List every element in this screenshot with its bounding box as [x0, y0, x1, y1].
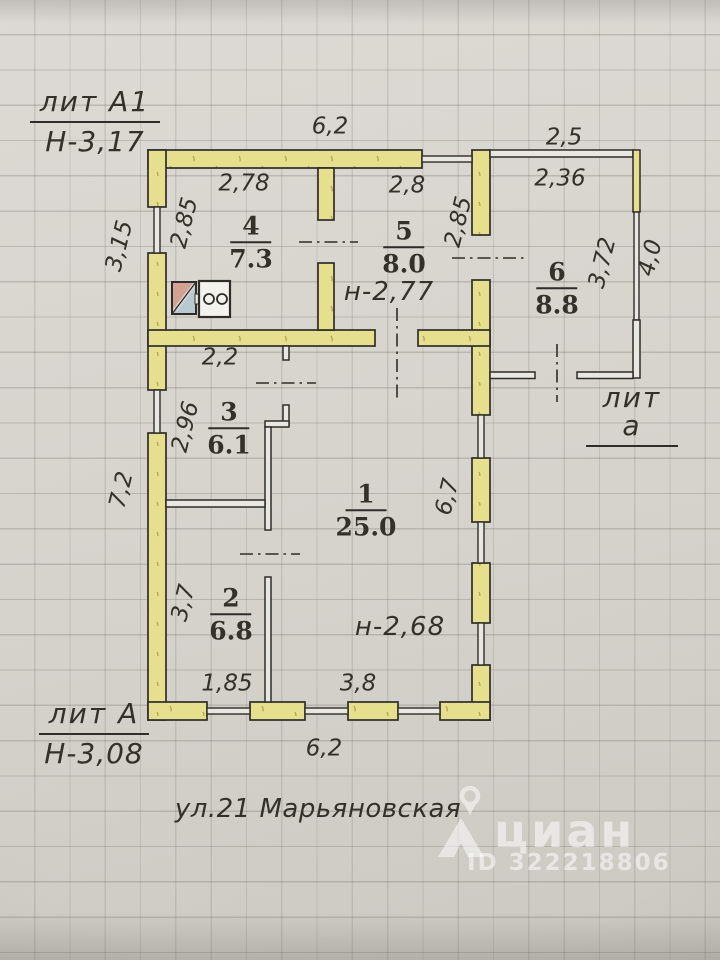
- room-label-1: 1 25.0: [336, 481, 397, 541]
- ceiling-height-upper: н-2,77: [344, 279, 434, 305]
- room-number: 3: [208, 399, 249, 429]
- room-number: 4: [230, 213, 271, 243]
- room-area: 25.0: [336, 515, 397, 541]
- location-pin-tail: [463, 802, 477, 815]
- wall-segment: [265, 577, 271, 702]
- stove-icon: [199, 281, 230, 317]
- building-label-a1: лит А1 Н-3,17: [20, 88, 170, 156]
- wall-segment: [265, 421, 289, 427]
- wall-segment: [472, 150, 490, 235]
- dim-annex-top: 2,5: [546, 127, 583, 150]
- wall-segment: [490, 372, 535, 379]
- wall-segment: [472, 563, 490, 623]
- window: [478, 623, 484, 665]
- dim-bottom-main: 6,2: [306, 738, 343, 761]
- floorplan-scan: лит А1 Н-3,17 лит А Н-3,08 лит а 4 7.3 5…: [0, 0, 720, 960]
- room-area: 7.3: [229, 247, 273, 273]
- wall-segment: [490, 150, 633, 157]
- window: [305, 708, 348, 714]
- dim-top-main: 6,2: [312, 116, 349, 139]
- wall-segment: [472, 280, 490, 415]
- dim-room1-bottom: 3,8: [340, 673, 377, 696]
- interior-bearing-walls: [148, 168, 490, 346]
- wall-segment: [148, 253, 166, 390]
- kitchen-fixtures: [172, 281, 230, 317]
- room-label-3: 3 6.1: [207, 399, 251, 459]
- room-number: 6: [536, 259, 577, 289]
- wall-segment: [577, 372, 633, 379]
- lit-label: лит А1: [30, 88, 160, 123]
- building-height: Н-3,08: [24, 740, 164, 768]
- window: [478, 415, 484, 458]
- wall-segment: [166, 500, 265, 507]
- window: [478, 522, 484, 563]
- dim-room6-width: 2,36: [534, 168, 585, 191]
- wall-segment: [472, 458, 490, 522]
- wall-segment: [348, 702, 398, 720]
- window: [422, 156, 472, 162]
- wall-segment: [148, 150, 166, 207]
- room-label-6: 6 8.8: [535, 259, 579, 319]
- room-area: 8.8: [535, 293, 579, 319]
- watermark-listing-id: ID 322218806: [467, 852, 671, 875]
- wall-segment: [633, 150, 640, 212]
- annex-label-a: лит а: [586, 384, 678, 447]
- dim-room4-width: 2,78: [218, 173, 269, 196]
- window: [207, 708, 250, 714]
- dim-room5-width: 2,8: [389, 175, 426, 198]
- wall-segment: [633, 320, 640, 378]
- room-label-4: 4 7.3: [229, 213, 273, 273]
- wall-segment: [148, 150, 422, 168]
- watermark-brand: циан: [494, 808, 635, 854]
- window: [398, 708, 440, 714]
- sink-icon: [172, 282, 199, 314]
- wall-segment: [148, 330, 375, 346]
- window: [154, 207, 160, 253]
- room-number: 2: [210, 585, 251, 615]
- building-height: Н-3,17: [20, 128, 170, 156]
- room-label-2: 2 6.8: [209, 585, 253, 645]
- wall-segment: [250, 702, 305, 720]
- room-number: 1: [345, 481, 386, 511]
- room-area: 6.1: [207, 433, 251, 459]
- wall-segment: [440, 702, 490, 720]
- wall-segment: [318, 168, 334, 220]
- wall-segment: [148, 433, 166, 720]
- room-area: 8.0: [382, 252, 426, 278]
- dim-room3-width: 2,2: [202, 347, 239, 370]
- dim-room2-bottom: 1,85: [201, 673, 252, 696]
- location-pin-icon: [462, 788, 478, 804]
- street-address: ул.21 Марьяновская: [175, 796, 461, 822]
- lit-label: лит а: [586, 384, 678, 447]
- room-number: 5: [383, 218, 424, 248]
- window: [154, 390, 160, 433]
- wall-segment: [265, 427, 271, 530]
- ceiling-height-lower: н-2,68: [355, 614, 445, 640]
- wall-segment: [318, 263, 334, 330]
- building-label-a: лит А Н-3,08: [24, 700, 164, 768]
- lit-label: лит А: [39, 700, 149, 735]
- wall-segment: [418, 330, 490, 346]
- room-area: 6.8: [209, 619, 253, 645]
- room-label-5: 5 8.0: [382, 218, 426, 278]
- wall-segment: [283, 346, 289, 360]
